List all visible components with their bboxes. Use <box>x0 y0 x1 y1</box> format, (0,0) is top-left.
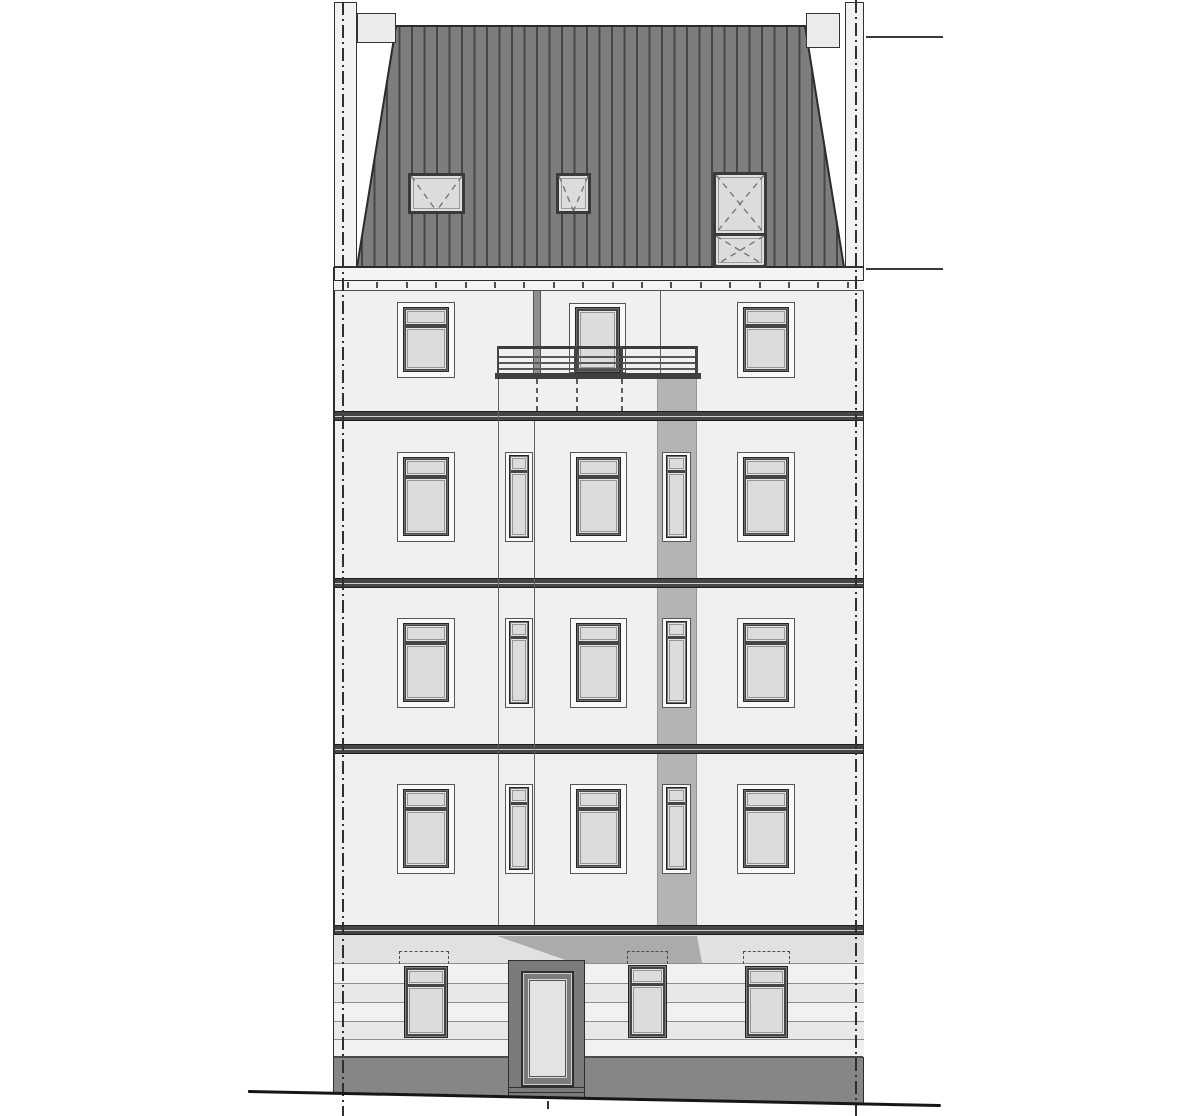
window-3og-c3-pane-top <box>580 461 617 474</box>
balcony-hidden-edge-1 <box>576 379 578 412</box>
roof-hatch-2-glass <box>718 177 762 231</box>
ground-window-1-pane-top <box>633 970 662 982</box>
window-1og-c5-pane-top <box>747 793 785 806</box>
roof-hatch-3 <box>713 233 767 268</box>
window-2og-c3-pane-top <box>580 627 617 640</box>
window-2og-c5-pane-top <box>747 627 785 640</box>
lintel-dashed-1 <box>627 951 668 964</box>
ground-window-0-pane-top <box>409 971 443 983</box>
window-2og-c3-pane-bottom <box>580 646 617 698</box>
eaves-tick-15 <box>788 282 790 288</box>
window-1og-c4-frame <box>666 787 687 870</box>
facade-joint-1 <box>534 421 535 925</box>
eaves-tick-0 <box>347 282 349 288</box>
eaves-fascia <box>334 267 864 281</box>
lintel-dashed-2 <box>743 951 790 964</box>
roof-hatch-0-glass <box>413 178 460 209</box>
eaves-tick-16 <box>817 282 819 288</box>
rustication-row-5 <box>334 1039 864 1057</box>
boundary-line-left <box>342 2 344 1116</box>
window-1og-c5-frame <box>743 789 789 868</box>
window-4og-c1-pane-bottom <box>407 329 445 368</box>
balcony-hidden-edge-0 <box>536 379 538 412</box>
window-2og-c2-frame <box>509 621 529 704</box>
eaves-tick-11 <box>670 282 672 288</box>
window-3og-c3-pane-bottom <box>580 480 617 532</box>
eaves-tick-3 <box>435 282 437 288</box>
balcony-rail-0 <box>497 356 698 358</box>
window-4og-c5-pane-top <box>747 311 785 323</box>
window-3og-c5-pane-bottom <box>747 480 785 532</box>
window-3og-c5-frame <box>743 457 789 536</box>
ground-window-2-pane-bottom <box>750 988 783 1033</box>
eaves-tick-13 <box>729 282 731 288</box>
window-1og-c3-frame <box>576 789 621 868</box>
roof-hatch-1 <box>556 173 591 214</box>
boundary-line-right <box>855 0 857 1116</box>
window-1og-c1-pane-bottom <box>407 812 445 864</box>
door-step-line-1 <box>508 1092 585 1093</box>
door-center-tick <box>547 1101 549 1109</box>
rustication-line-4 <box>334 1039 864 1040</box>
balcony-door-glass <box>580 312 615 368</box>
ground-window-0-frame <box>404 966 448 1038</box>
window-3og-c1-frame <box>403 457 449 536</box>
eaves-tick-17 <box>847 282 849 288</box>
eaves-tick-14 <box>759 282 761 288</box>
roof-outline <box>357 26 844 267</box>
elevation-drawing <box>0 0 1200 1116</box>
window-3og-c2-pane-top <box>512 458 526 469</box>
window-3og-c4-frame <box>666 455 687 538</box>
eaves-tick-7 <box>553 282 555 288</box>
reference-line-1 <box>866 268 943 270</box>
balcony-rail-top <box>497 346 698 349</box>
window-2og-c3-frame <box>576 623 621 702</box>
eaves-tick-12 <box>700 282 702 288</box>
balcony-rail-1 <box>497 362 698 364</box>
window-3og-c2-frame <box>509 455 529 538</box>
eaves-tick-2 <box>406 282 408 288</box>
floor-band-1-midline <box>334 416 864 417</box>
floor-band-3-midline <box>334 749 864 750</box>
facade-joint-2 <box>660 291 661 373</box>
window-4og-c5-frame <box>743 307 789 372</box>
window-4og-c1-pane-top <box>407 311 445 323</box>
eaves-tick-1 <box>376 282 378 288</box>
facade-joint-0 <box>498 347 499 925</box>
window-1og-c2-pane-top <box>512 790 526 801</box>
window-1og-c3-pane-top <box>580 793 617 806</box>
window-2og-c2-pane-top <box>512 624 526 635</box>
balcony-post-2 <box>620 346 623 374</box>
window-1og-c4-pane-top <box>669 790 684 801</box>
eaves-tick-9 <box>612 282 614 288</box>
balcony-post-1 <box>574 346 577 374</box>
balcony-hidden-edge-2 <box>621 379 623 412</box>
window-4og-c5-pane-bottom <box>747 329 785 368</box>
party-wall-left <box>334 2 357 267</box>
window-3og-c5-pane-top <box>747 461 785 474</box>
eaves-tick-8 <box>582 282 584 288</box>
window-4og-c1-frame <box>403 307 449 372</box>
eaves-tick-10 <box>641 282 643 288</box>
floor-band-4-midline <box>334 930 864 931</box>
window-2og-c1-pane-bottom <box>407 646 445 698</box>
window-1og-c4-pane-bottom <box>669 806 684 867</box>
window-3og-c4-pane-bottom <box>669 474 684 535</box>
chimney-left <box>357 13 396 43</box>
eaves-tick-band <box>334 281 864 291</box>
ground-window-1-frame <box>628 965 667 1038</box>
window-2og-c1-pane-top <box>407 627 445 640</box>
balcony-rail-2 <box>497 368 698 370</box>
plinth-top-edge <box>334 1056 863 1058</box>
entrance-door-leaf <box>529 980 566 1077</box>
ground-window-2-pane-top <box>750 971 783 983</box>
window-2og-c2-pane-bottom <box>512 640 526 701</box>
ground-window-1-pane-bottom <box>633 987 662 1033</box>
balcony-slab <box>495 373 701 379</box>
roof-field <box>357 26 844 267</box>
window-3og-c1-pane-top <box>407 461 445 474</box>
eaves-tick-5 <box>494 282 496 288</box>
window-1og-c2-pane-bottom <box>512 806 526 867</box>
door-step-line-0 <box>508 1087 585 1088</box>
roof-hatch-0 <box>408 173 465 214</box>
window-3og-c2-pane-bottom <box>512 474 526 535</box>
window-1og-c1-frame <box>403 789 449 868</box>
reference-line-0 <box>866 36 943 38</box>
eaves-tick-6 <box>523 282 525 288</box>
entrance-door-frame <box>521 971 574 1087</box>
window-2og-c1-frame <box>403 623 449 702</box>
window-1og-c3-pane-bottom <box>580 812 617 864</box>
window-1og-c5-pane-bottom <box>747 812 785 864</box>
chimney-right <box>806 13 840 48</box>
window-2og-c4-frame <box>666 621 687 704</box>
ground-window-2-frame <box>745 966 788 1038</box>
window-2og-c5-pane-bottom <box>747 646 785 698</box>
window-3og-c1-pane-bottom <box>407 480 445 532</box>
roof-hatch-3-glass <box>718 238 762 263</box>
lintel-dashed-0 <box>399 951 449 964</box>
window-2og-c4-pane-top <box>669 624 684 635</box>
roof-hatch-2 <box>713 172 767 236</box>
window-3og-c3-frame <box>576 457 621 536</box>
window-2og-c5-frame <box>743 623 789 702</box>
roof-hatch-1-glass <box>561 178 586 209</box>
eaves-tick-4 <box>465 282 467 288</box>
window-3og-c4-pane-top <box>669 458 684 469</box>
floor-band-2-midline <box>334 583 864 584</box>
window-1og-c2-frame <box>509 787 529 870</box>
ground-window-0-pane-bottom <box>409 988 443 1033</box>
window-1og-c1-pane-top <box>407 793 445 806</box>
window-2og-c4-pane-bottom <box>669 640 684 701</box>
balcony-post-0 <box>497 346 499 374</box>
balcony-post-3 <box>695 346 698 374</box>
